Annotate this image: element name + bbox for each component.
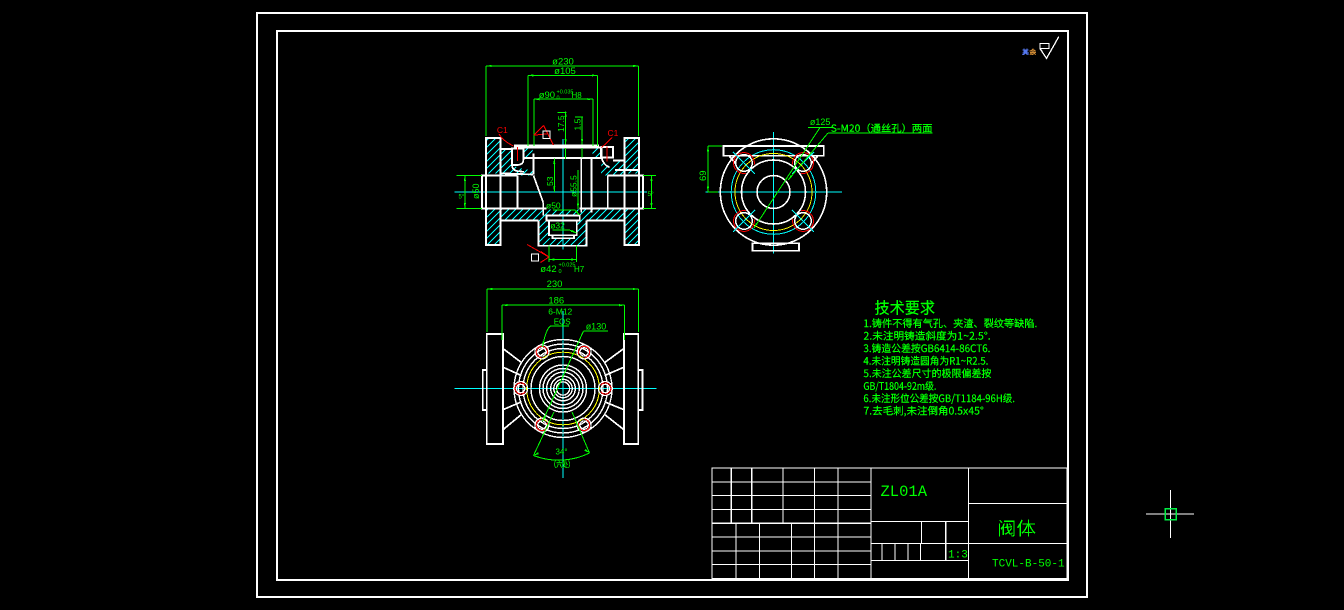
svg-text:ø105: ø105 bbox=[554, 66, 576, 77]
svg-text:0: 0 bbox=[559, 269, 562, 275]
svg-text:0: 0 bbox=[557, 96, 560, 102]
svg-text:H7: H7 bbox=[574, 265, 585, 274]
svg-text:5°: 5° bbox=[648, 190, 655, 198]
svg-text:69: 69 bbox=[698, 170, 709, 181]
svg-text:ø50: ø50 bbox=[471, 183, 481, 199]
svg-text:+0.025: +0.025 bbox=[559, 263, 576, 269]
svg-text:53: 53 bbox=[545, 176, 555, 186]
svg-text:1:3: 1:3 bbox=[948, 550, 968, 562]
svg-text:ø130: ø130 bbox=[586, 322, 607, 332]
svg-text:TCVL-B-50-1: TCVL-B-50-1 bbox=[992, 559, 1065, 571]
svg-text:6-M12: 6-M12 bbox=[548, 306, 572, 316]
svg-text:C1: C1 bbox=[608, 128, 619, 138]
svg-text:ø50: ø50 bbox=[546, 200, 561, 210]
svg-text:C1: C1 bbox=[497, 125, 508, 135]
svg-text:17.5: 17.5 bbox=[556, 115, 566, 132]
svg-text:230: 230 bbox=[547, 279, 563, 290]
svg-text:34°: 34° bbox=[555, 447, 567, 456]
svg-text:186: 186 bbox=[548, 295, 564, 306]
svg-text:H8: H8 bbox=[572, 91, 583, 100]
svg-text:ø32: ø32 bbox=[550, 221, 565, 231]
svg-text:1.5: 1.5 bbox=[573, 118, 583, 130]
svg-text:EQS: EQS bbox=[554, 318, 571, 327]
svg-text:ø42: ø42 bbox=[540, 264, 556, 275]
svg-text:ø90: ø90 bbox=[539, 90, 555, 101]
svg-text:5°: 5° bbox=[459, 195, 465, 201]
svg-text:ø125: ø125 bbox=[810, 117, 831, 127]
svg-text:ø55.5: ø55.5 bbox=[569, 175, 579, 197]
svg-text:ZL01A: ZL01A bbox=[881, 483, 928, 501]
